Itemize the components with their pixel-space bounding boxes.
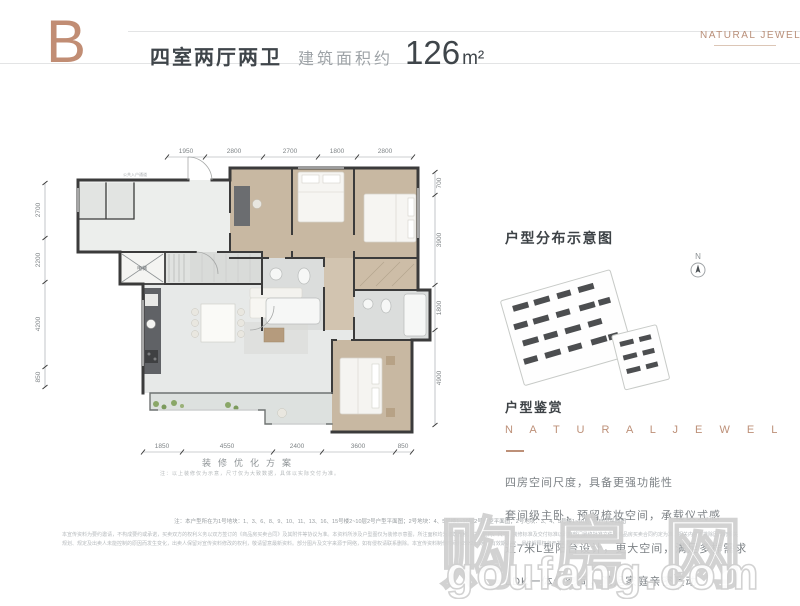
site-parcel-1: [500, 270, 634, 386]
page-title: 四室两厅两卫 建筑面积约 126 m²: [150, 34, 484, 72]
compass-north-label: N: [688, 252, 708, 261]
brand-logo-subtitle: [714, 45, 776, 48]
svg-text:2200: 2200: [35, 252, 42, 267]
svg-text:4200: 4200: [35, 316, 42, 331]
site-plan: [498, 254, 673, 394]
area-value: 126: [405, 34, 460, 72]
dim-right: 700 3900 1800 4900: [433, 170, 444, 427]
svg-text:2800: 2800: [378, 148, 393, 155]
svg-text:1800: 1800: [330, 148, 345, 155]
svg-text:2400: 2400: [290, 443, 305, 450]
feature-item: 四房空间尺度，具备更强功能性: [505, 474, 747, 490]
brand-logo: NATURAL JEWEL: [700, 30, 790, 48]
site-parcel-2: [612, 325, 670, 390]
coffee-table: [264, 328, 284, 342]
svg-text:4900: 4900: [436, 370, 443, 385]
balcony-chair: [278, 409, 287, 418]
layout-title: 四室两厅两卫: [150, 41, 282, 70]
svg-text:2800: 2800: [227, 148, 242, 155]
svg-text:850: 850: [398, 443, 409, 450]
svg-text:3600: 3600: [351, 443, 366, 450]
svg-text:1800: 1800: [436, 300, 443, 315]
brochure-page: B 四室两厅两卫 建筑面积约 126 m² NATURAL JEWEL: [0, 0, 800, 600]
room-balcony: [150, 393, 332, 424]
unit-type-letter: B: [46, 12, 86, 72]
compass-icon: N: [688, 252, 708, 283]
svg-text:3900: 3900: [436, 232, 443, 247]
brand-dash: [506, 450, 524, 452]
elevator-label: 电梯: [137, 265, 147, 272]
bed-bedroom2: [298, 172, 344, 222]
dim-bottom: 1850 4550 2400 3600 850: [141, 443, 414, 455]
svg-text:700: 700: [436, 177, 443, 188]
room-dressing: [354, 258, 418, 290]
brand-logo-text: NATURAL JEWEL: [700, 30, 790, 41]
plan-caption-note: 注：以上装修仅为示意，尺寸仅为大致数据，具体以实际交付为准。: [80, 470, 420, 477]
dim-top: 1950 2800 2700 1800 2800: [165, 148, 415, 160]
room-utility-b: [108, 183, 134, 219]
plan-caption: 装修优化方案: [120, 456, 380, 469]
svg-text:4550: 4550: [220, 443, 235, 450]
svg-text:2700: 2700: [35, 202, 42, 217]
room-corridor: [324, 258, 354, 330]
bed-top-right: [364, 194, 416, 242]
compass-needle-icon: [690, 262, 706, 278]
dim-left: 2700 2200 4200 850: [35, 181, 48, 389]
watermark-site-domain: goufang.com: [446, 548, 761, 600]
corridor-label: 公共入户通道: [123, 171, 147, 177]
distribution-title: 户型分布示意图: [505, 228, 614, 248]
svg-text:850: 850: [35, 371, 42, 382]
appreciation-brand: N A T U R A L J E W E L: [505, 424, 784, 436]
appreciation-title: 户型鉴赏: [505, 397, 563, 416]
area-label: 建筑面积约: [298, 45, 393, 69]
floor-plan: 公共入户通道 电梯 1950 2800 2700 1800 2800 2700 …: [28, 128, 452, 458]
svg-text:2700: 2700: [283, 148, 298, 155]
svg-text:1950: 1950: [179, 148, 194, 155]
area-unit: m²: [462, 48, 484, 70]
svg-text:1850: 1850: [155, 443, 170, 450]
room-utility-a: [78, 183, 106, 219]
